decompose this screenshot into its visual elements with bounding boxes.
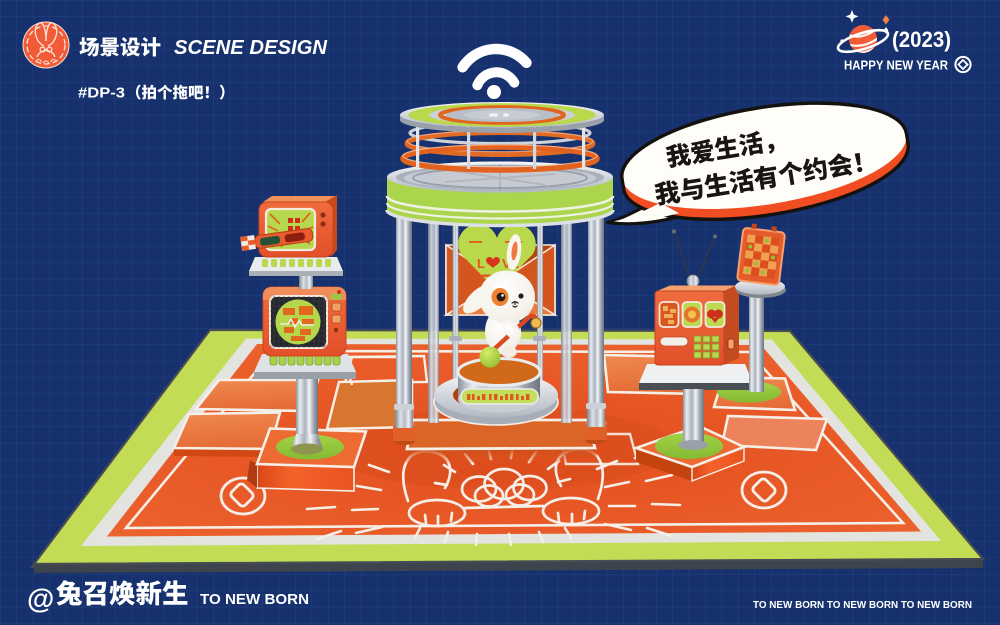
- svg-text:L: L: [477, 256, 485, 271]
- svg-text:TO NEW BORN TO NEW BORN TO NEW: TO NEW BORN TO NEW BORN TO NEW BORN: [753, 599, 972, 611]
- svg-text:SCENE DESIGN: SCENE DESIGN: [174, 36, 328, 59]
- svg-text:@: @: [27, 583, 54, 614]
- svg-text:#DP-3: #DP-3: [78, 86, 125, 102]
- svg-text:HAPPY NEW YEAR: HAPPY NEW YEAR: [844, 58, 949, 73]
- svg-text:(2023): (2023): [892, 27, 951, 52]
- svg-text:TO NEW BORN: TO NEW BORN: [200, 591, 309, 608]
